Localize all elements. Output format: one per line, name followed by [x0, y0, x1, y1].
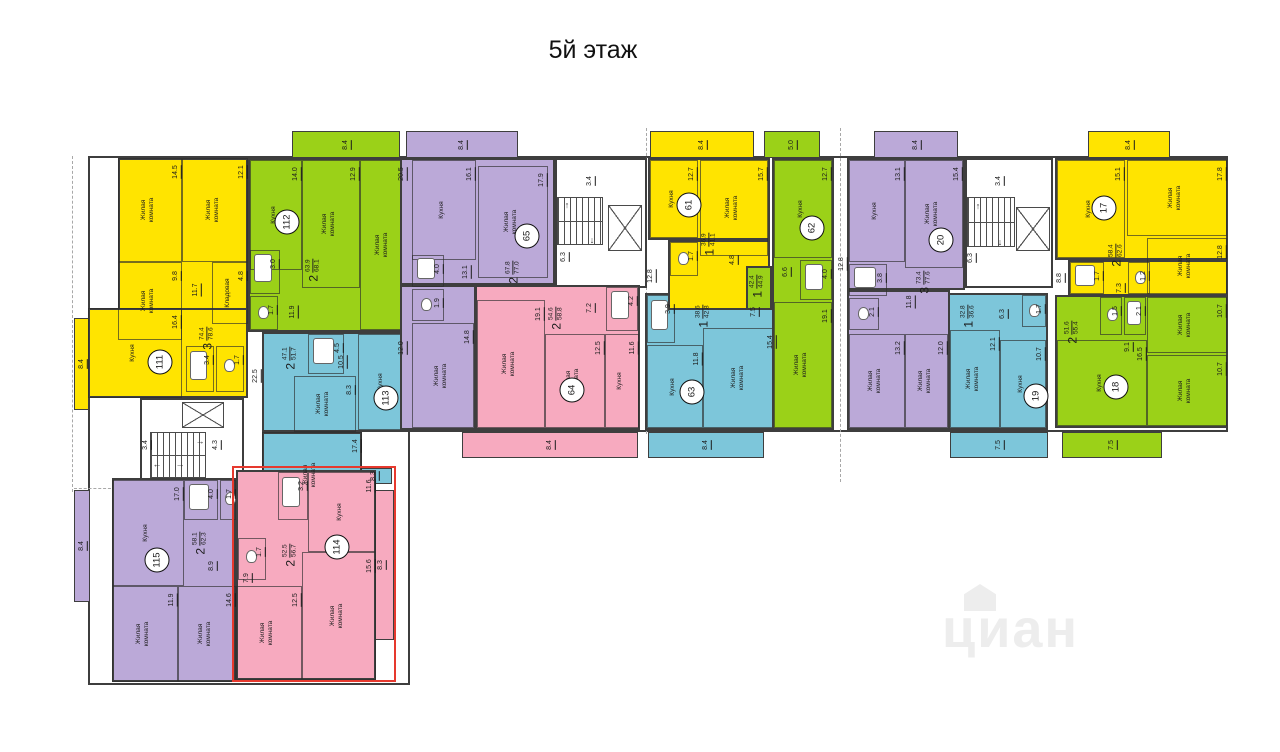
- dimension-label: 8.8: [1056, 273, 1064, 283]
- room-area-label: 12.8: [1217, 245, 1225, 259]
- room-area-label: 2.1: [1136, 306, 1144, 316]
- summary-living-area: 67.8: [504, 260, 513, 275]
- room-name-label: Жилая комната: [1167, 186, 1183, 211]
- apartment-summary: 142.444.9: [748, 274, 765, 297]
- balcony-area-label: 8.4: [912, 140, 920, 150]
- summary-living-area: 74.4: [198, 326, 207, 341]
- room-area-label: 19.1: [535, 307, 543, 321]
- summary-total-area: 62.6: [1117, 243, 1125, 258]
- bathtub-icon: [189, 484, 209, 510]
- room-name-label: Кухня: [616, 372, 624, 389]
- room: [184, 480, 218, 520]
- summary-total-area: 42.8: [704, 304, 712, 319]
- summary-total-area: 77.6: [925, 270, 933, 285]
- room: [216, 346, 244, 392]
- dimension-label: 12.8: [838, 257, 846, 271]
- dimension-label: 12.8: [647, 269, 655, 283]
- apartment-summary: 254.658.8: [547, 306, 564, 329]
- room-name-label: Жилая комната: [724, 196, 740, 221]
- room-area-label: 14.5: [172, 165, 180, 179]
- summary-areas: 63.968.1: [304, 258, 321, 273]
- summary-living-area: 38.6: [694, 304, 703, 319]
- room-name-label: Жилая комната: [197, 622, 213, 647]
- summary-living-area: 42.4: [748, 274, 757, 289]
- room-name-label: Жилая комната: [793, 353, 809, 378]
- room-name-label: Жилая комната: [917, 369, 933, 394]
- room-area-label: 12.7: [822, 167, 830, 181]
- apartment-summary: 136.941.1: [700, 232, 717, 255]
- summary-room-count: 2: [549, 323, 563, 330]
- summary-living-area: 32.8: [959, 304, 968, 319]
- summary-areas: 42.444.9: [748, 274, 765, 289]
- room-area-label: 3.8: [877, 273, 885, 283]
- room-area-label: 17.9: [538, 173, 546, 187]
- room-area-label: 15.1: [1115, 167, 1123, 181]
- stair-direction-arrow: ↓: [998, 237, 1003, 247]
- room-name-label: Кухня: [129, 344, 137, 361]
- room-area-label: 13.2: [895, 341, 903, 355]
- room-area-label: 15.4: [953, 167, 961, 181]
- room-area-label: 1.7: [1036, 304, 1044, 314]
- room-area-label: 11.8: [906, 295, 914, 308]
- balcony-area-label: 8.4: [77, 359, 85, 369]
- summary-room-count: 3: [917, 287, 931, 294]
- room-area-label: 1.7: [1094, 271, 1102, 281]
- room: [606, 287, 638, 331]
- bathtub-icon: [313, 338, 334, 364]
- room-name-label: Жилая комната: [315, 392, 331, 417]
- apartment-number-badge: 20: [929, 228, 954, 253]
- room-area-label: 12.5: [595, 341, 603, 355]
- room-area-label: 1.7: [268, 305, 276, 315]
- room-area-label: 12.1: [238, 165, 246, 179]
- bathtub-icon: [854, 267, 876, 288]
- stair-direction-arrow: ↓: [590, 235, 595, 245]
- room-area-label: 12.9: [350, 167, 358, 181]
- balcony-area-label: 8.4: [458, 140, 466, 150]
- summary-total-area: 68.1: [314, 258, 322, 273]
- apartment-summary: 258.462.6: [1107, 243, 1124, 266]
- apartment-number-badge: 64: [560, 378, 585, 403]
- apartment-number-badge: 18: [1104, 375, 1129, 400]
- summary-areas: 38.642.8: [694, 304, 711, 319]
- apartment-summary: 374.478.6: [198, 326, 215, 349]
- room-area-label: 16.4: [172, 315, 180, 329]
- summary-areas: 67.877.0: [504, 260, 521, 275]
- room-name-label: Жилая комната: [1177, 313, 1193, 338]
- room-area-label: 20.5: [398, 167, 406, 181]
- summary-room-count: 2: [1109, 260, 1123, 267]
- room-area-label: 10.7: [1217, 304, 1225, 318]
- floor-plan: 5й этаж циан 3.44.3→←→3.46.3↑↓3.46.3↑↓8.…: [0, 0, 1280, 752]
- toilet-icon: [858, 307, 869, 320]
- summary-room-count: 2: [193, 548, 207, 555]
- room-area-label: 4.0: [208, 489, 216, 499]
- elevator-shaft: [608, 205, 642, 251]
- apartment-summary: 258.162.3: [191, 531, 208, 554]
- room-area-label: 11.9: [289, 305, 297, 318]
- summary-living-area: 54.6: [547, 306, 556, 321]
- room: [1124, 297, 1146, 335]
- stair-direction-arrow: ↑: [565, 200, 570, 210]
- summary-total-area: 36.6: [969, 304, 977, 319]
- summary-living-area: 63.9: [304, 258, 313, 273]
- room-area-label: 4.5: [334, 343, 342, 353]
- room-area-label: 7.2: [586, 303, 594, 313]
- room-name-label: Жилая комната: [1177, 378, 1193, 403]
- room-area-label: 11.7: [192, 283, 200, 296]
- room-name-label: Жилая комната: [140, 289, 156, 314]
- apartment-summary: 263.968.1: [304, 258, 321, 281]
- bathtub-icon: [1075, 265, 1095, 286]
- room-area-label: 17.4: [352, 439, 360, 453]
- room-area-label: 11.6: [629, 341, 637, 354]
- summary-areas: 32.836.6: [959, 304, 976, 319]
- balcony-area-label: 8.4: [702, 440, 710, 450]
- staircase-midline: [967, 222, 1015, 223]
- room-area-label: 4.2: [628, 296, 636, 306]
- apartment-number-badge: 65: [515, 224, 540, 249]
- dimension-label: 3.4: [995, 176, 1003, 186]
- apartment-summary: 373.477.6: [915, 270, 932, 293]
- balcony-area-label: 8.4: [546, 440, 554, 450]
- summary-room-count: 1: [696, 321, 710, 328]
- watermark-text: циан: [942, 598, 1079, 660]
- room-area-label: 12.1: [990, 337, 998, 351]
- room-name-label: Жилая комната: [1177, 254, 1193, 279]
- summary-room-count: 2: [283, 363, 297, 370]
- stair-direction-arrow: →: [196, 436, 205, 446]
- bathtub-icon: [805, 264, 824, 290]
- summary-total-area: 44.9: [758, 274, 766, 289]
- selected-apartment-outline: [232, 466, 396, 682]
- room-name-label: Жилая комната: [433, 363, 449, 388]
- apartment-summary: 251.655.4: [1063, 320, 1080, 343]
- floor-title: 5й этаж: [549, 36, 638, 65]
- staircase-midline: [557, 221, 603, 222]
- apartment-number-badge: 62: [800, 216, 825, 241]
- room-area-label: 8.9: [208, 561, 216, 571]
- bathtub-icon: [417, 258, 436, 279]
- room-area-label: 15.7: [758, 167, 766, 181]
- apartment-number-badge: 115: [145, 548, 170, 573]
- room-area-label: 1.7: [234, 355, 242, 365]
- summary-areas: 47.151.7: [281, 346, 298, 361]
- room-area-label: 3.4: [204, 355, 212, 365]
- room: [250, 250, 280, 294]
- room-area-label: 4.0: [434, 264, 442, 274]
- room-area-label: 13.1: [462, 265, 470, 279]
- summary-living-area: 51.6: [1063, 320, 1072, 335]
- summary-room-count: 1: [750, 291, 764, 298]
- balcony-area-label: 5.0: [788, 140, 796, 150]
- room-area-label: 1.2: [1140, 271, 1148, 281]
- apartment-number-badge: 111: [148, 350, 173, 375]
- summary-room-count: 2: [506, 277, 520, 284]
- room-area-label: 12.0: [398, 341, 406, 355]
- stair-direction-arrow: ←: [153, 459, 162, 469]
- room-area-label: 3.0: [270, 259, 278, 269]
- summary-areas: 36.941.1: [700, 232, 717, 247]
- apartment-number-badge: 63: [680, 380, 705, 405]
- room: [1100, 297, 1122, 335]
- room-area-label: 16.1: [466, 167, 474, 181]
- room-name-label: Жилая комната: [501, 352, 517, 377]
- room-name-label: Жилая комната: [924, 202, 940, 227]
- summary-areas: 58.162.3: [191, 531, 208, 546]
- summary-room-count: 1: [961, 321, 975, 328]
- balcony-area-label: 8.4: [1125, 140, 1133, 150]
- room-area-label: 4.0: [822, 269, 830, 279]
- room-area-label: 17.8: [1217, 167, 1225, 181]
- room-area-label: 15.4: [767, 335, 775, 349]
- summary-room-count: 3: [200, 343, 214, 350]
- room-name-label: Кухня: [797, 200, 805, 217]
- room-area-label: 11.9: [168, 593, 176, 606]
- apartment-number-badge: 17: [1092, 196, 1117, 221]
- toilet-icon: [421, 298, 432, 311]
- room-area-label: 19.1: [822, 309, 830, 323]
- apartment-summary: 138.642.8: [694, 304, 711, 327]
- apartment-number-badge: 112: [275, 210, 300, 235]
- room: [186, 346, 214, 392]
- room-area-label: 4.8: [238, 271, 246, 281]
- apartment-summary: 132.836.6: [959, 304, 976, 327]
- staircase-midline: [150, 455, 206, 456]
- construction-axis-line: [72, 156, 73, 492]
- room-area-label: 3.9: [665, 304, 673, 314]
- room-area-label: 1.5: [1112, 306, 1120, 316]
- dimension-label: 3.4: [142, 440, 150, 450]
- apartment-summary: 267.877.0: [504, 260, 521, 283]
- room: [800, 260, 832, 300]
- room-area-label: 9.8: [172, 271, 180, 281]
- balcony-area-label: 7.5: [995, 440, 1003, 450]
- summary-areas: 51.655.4: [1063, 320, 1080, 335]
- room-name-label: Жилая комната: [374, 233, 390, 258]
- summary-room-count: 1: [702, 249, 716, 256]
- room-name-label: Кухня: [142, 524, 150, 541]
- summary-total-area: 51.7: [291, 346, 299, 361]
- room-name-label: Кухня: [871, 202, 879, 219]
- room-area-label: 6.3: [999, 309, 1007, 319]
- summary-room-count: 2: [1065, 337, 1079, 344]
- room-area-label: 7.3: [1116, 283, 1124, 293]
- dimension-label: 22.5: [252, 369, 260, 383]
- summary-total-area: 62.3: [201, 531, 209, 546]
- summary-areas: 58.462.6: [1107, 243, 1124, 258]
- room-area-label: 1.9: [434, 298, 442, 308]
- dimension-label: 3.4: [586, 176, 594, 186]
- room-name-label: Кухня: [668, 190, 676, 207]
- balcony-area-label: 8.4: [78, 541, 86, 551]
- summary-total-area: 41.1: [710, 232, 718, 247]
- summary-total-area: 78.6: [208, 326, 216, 341]
- room-area-label: 7.5: [750, 307, 758, 317]
- dimension-label: 6.3: [967, 253, 975, 263]
- room-name-label: Жилая комната: [135, 622, 151, 647]
- balcony-area-label: 8.4: [342, 140, 350, 150]
- room-name-label: Жилая комната: [730, 366, 746, 391]
- balcony-area-label: 8.4: [698, 140, 706, 150]
- apartment-summary: 247.151.7: [281, 346, 298, 369]
- room-area-label: 10.7: [1036, 347, 1044, 361]
- summary-areas: 54.658.8: [547, 306, 564, 321]
- summary-total-area: 58.8: [557, 306, 565, 321]
- summary-living-area: 47.1: [281, 346, 290, 361]
- room-area-label: 9.1: [1124, 342, 1132, 352]
- room-area-label: 17.0: [174, 487, 182, 501]
- summary-areas: 73.477.6: [915, 270, 932, 285]
- summary-living-area: 58.1: [191, 531, 200, 546]
- room-area-label: 10.7: [1217, 362, 1225, 376]
- stair-direction-arrow: ↑: [976, 201, 981, 211]
- summary-areas: 74.478.6: [198, 326, 215, 341]
- dimension-label: 4.3: [212, 440, 220, 450]
- summary-total-area: 77.0: [514, 260, 522, 275]
- room-area-label: 10.5: [338, 355, 346, 369]
- room-area-label: 8.3: [346, 385, 354, 395]
- summary-living-area: 36.9: [700, 232, 709, 247]
- room-name-label: Кухня: [438, 201, 446, 218]
- apartment-number-badge: 61: [677, 193, 702, 218]
- room-area-label: 14.0: [292, 167, 300, 181]
- room-name-label: Жилая комната: [205, 198, 221, 223]
- room-area-label: 2.1: [869, 307, 877, 317]
- summary-room-count: 2: [306, 275, 320, 282]
- room-name-label: Жилая комната: [965, 367, 981, 392]
- elevator-shaft: [182, 402, 224, 428]
- room-name-label: Жилая комната: [867, 369, 883, 394]
- apartment-number-badge: 113: [374, 386, 399, 411]
- elevator-shaft: [1016, 207, 1050, 251]
- room-area-label: 12.0: [938, 341, 946, 355]
- room-area-label: 1.7: [688, 251, 696, 261]
- room-area-label: 6.6: [782, 267, 790, 277]
- room-name-label: Кладовая: [224, 278, 232, 307]
- room-name-label: Жилая комната: [140, 198, 156, 223]
- summary-total-area: 55.4: [1073, 320, 1081, 335]
- room-name-label: Кухня: [669, 378, 677, 395]
- room-name-label: Жилая комната: [321, 212, 337, 237]
- bathtub-icon: [611, 291, 630, 319]
- room-area-label: 13.1: [895, 167, 903, 181]
- room-area-label: 4.8: [729, 255, 737, 265]
- balcony-area-label: 7.5: [1108, 440, 1116, 450]
- stair-direction-arrow: →: [176, 459, 185, 469]
- summary-living-area: 58.4: [1107, 243, 1116, 258]
- construction-axis-line: [840, 128, 841, 482]
- summary-living-area: 73.4: [915, 270, 924, 285]
- room-area-label: 16.5: [1137, 347, 1145, 361]
- room-area-label: 11.8: [693, 352, 701, 365]
- room-area-label: 12.7: [688, 167, 696, 181]
- dimension-label: 6.3: [560, 252, 568, 262]
- room-area-label: 14.8: [464, 330, 472, 344]
- staircase: [967, 197, 1015, 247]
- apartment-number-badge: 19: [1024, 384, 1049, 409]
